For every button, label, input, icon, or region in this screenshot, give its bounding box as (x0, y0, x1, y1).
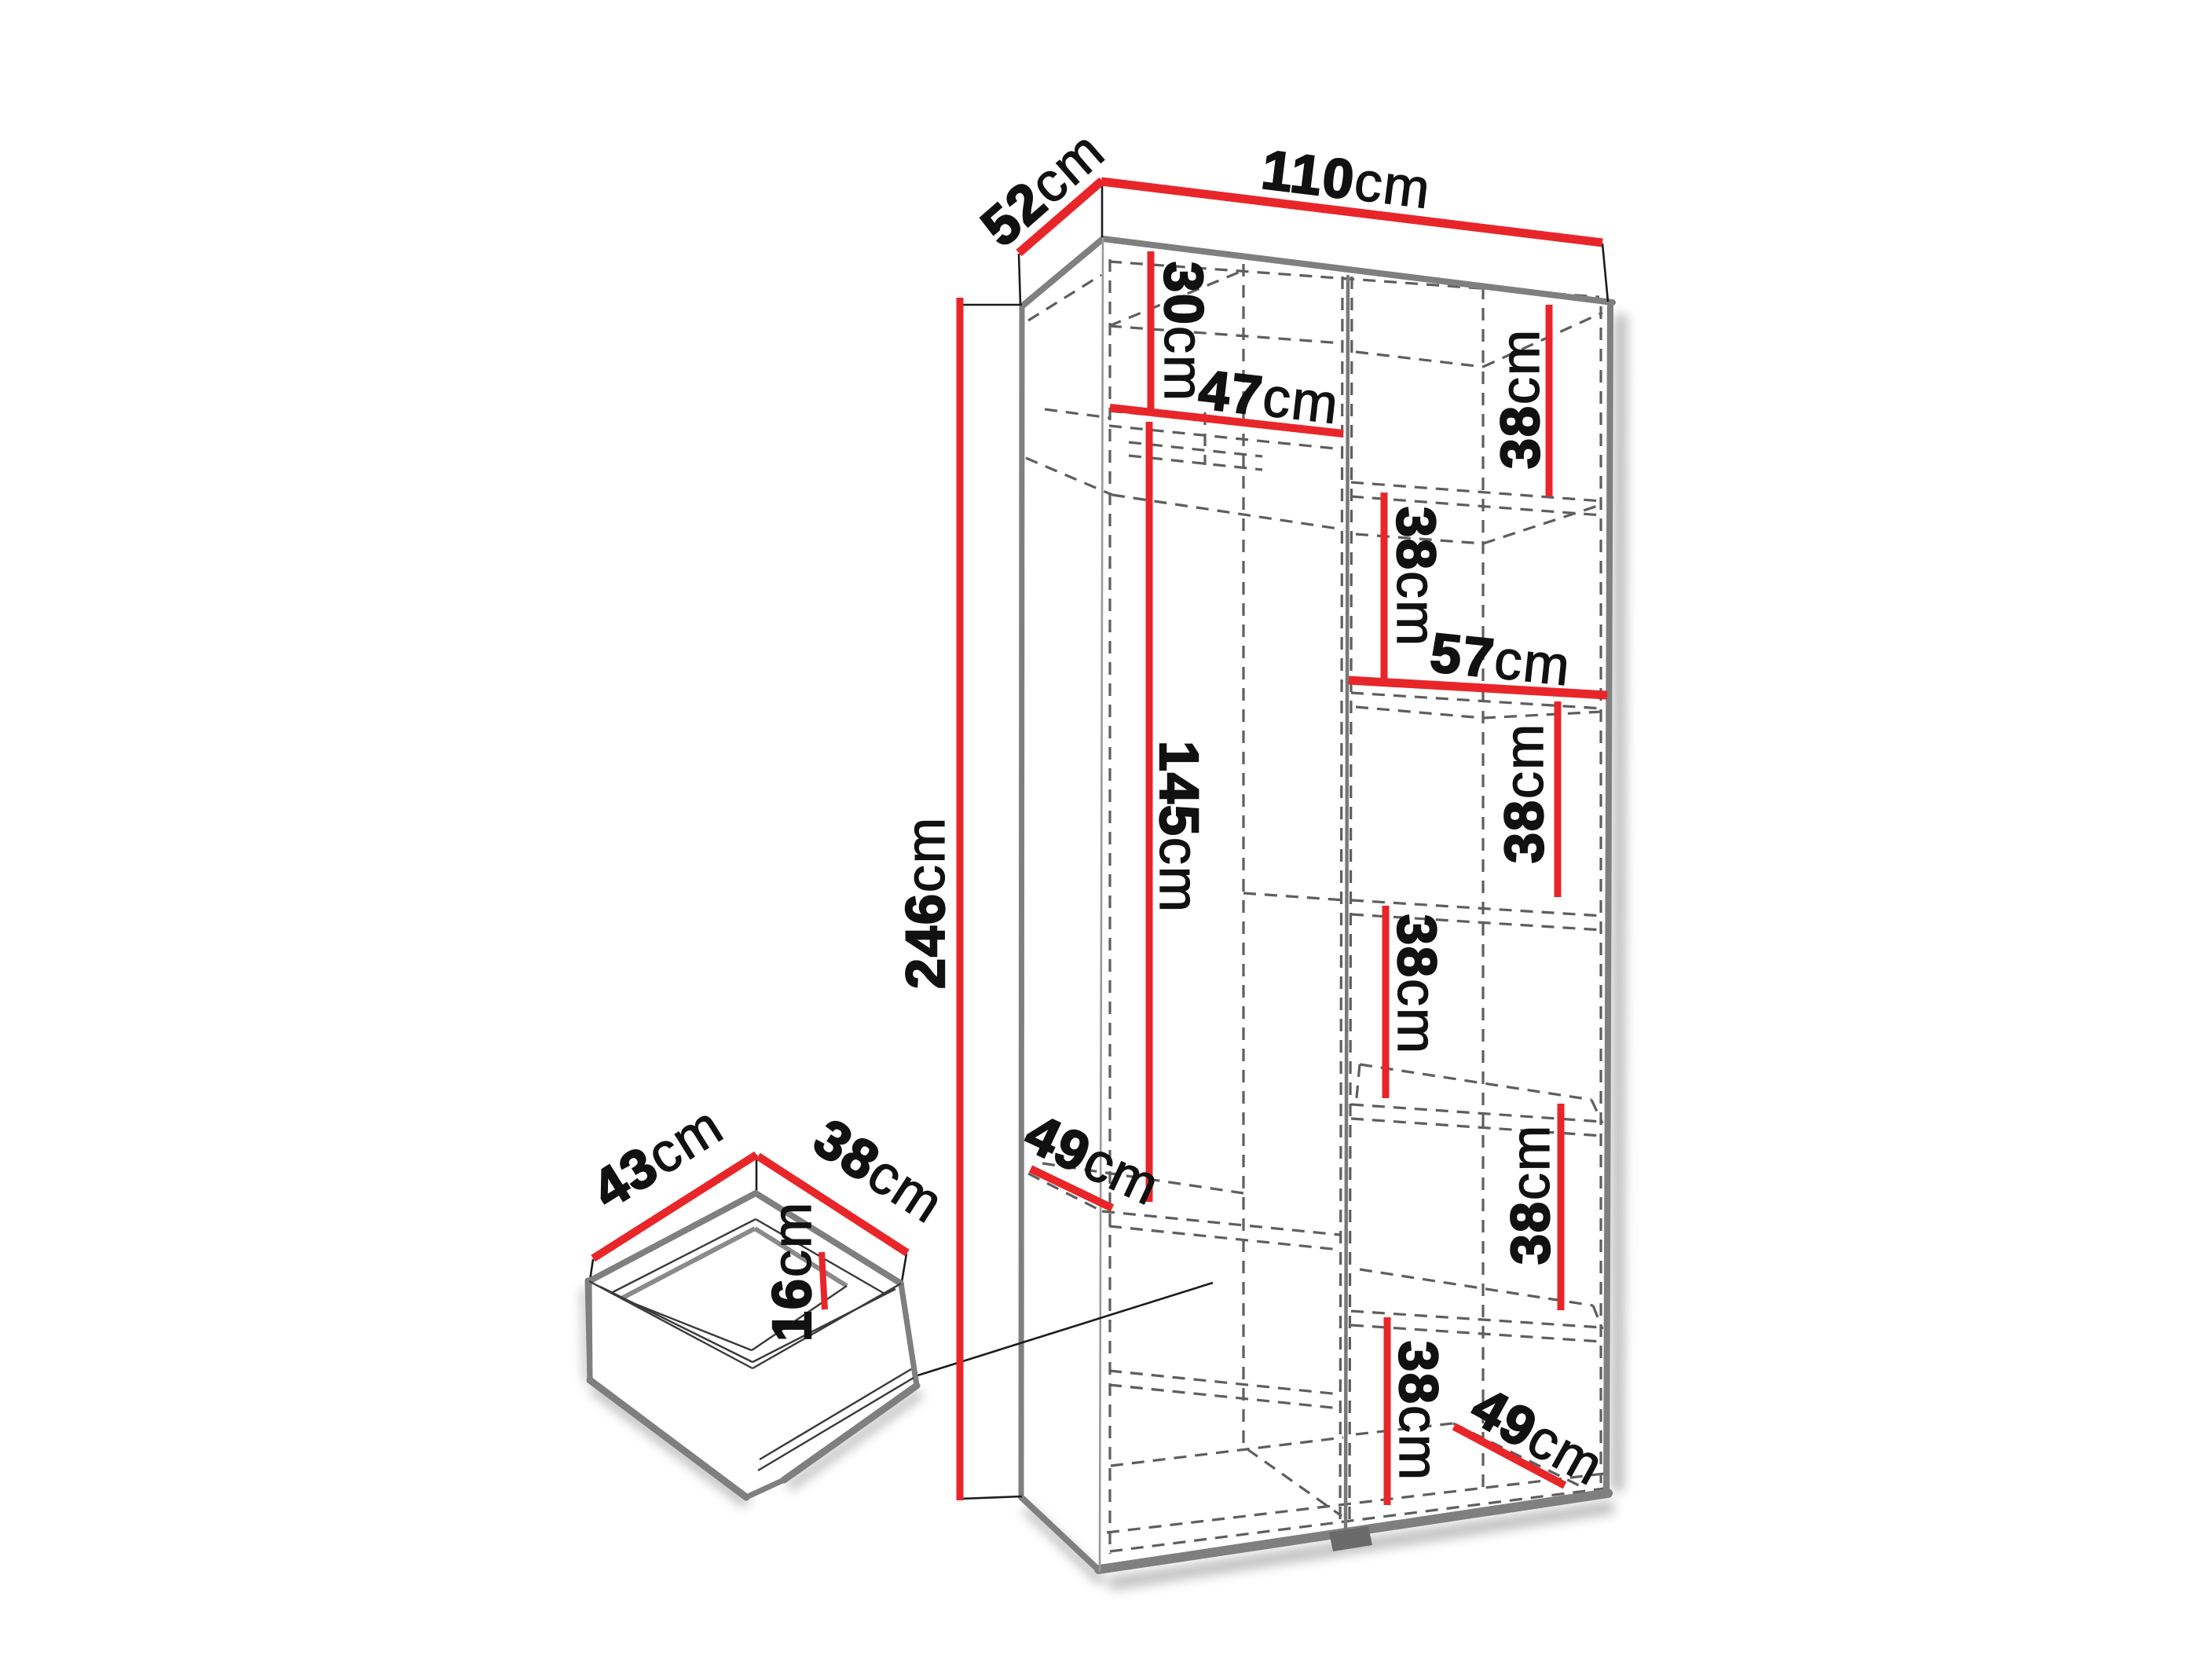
svg-text:38cm: 38cm (1388, 1341, 1449, 1481)
svg-text:38cm: 38cm (1489, 328, 1551, 469)
svg-text:38cm: 38cm (1500, 1124, 1561, 1265)
svg-text:145cm: 145cm (1148, 741, 1210, 914)
svg-text:16cm: 16cm (761, 1201, 822, 1342)
svg-text:246cm: 246cm (895, 816, 956, 989)
svg-text:38cm: 38cm (1493, 723, 1555, 863)
svg-text:38cm: 38cm (1386, 914, 1448, 1055)
